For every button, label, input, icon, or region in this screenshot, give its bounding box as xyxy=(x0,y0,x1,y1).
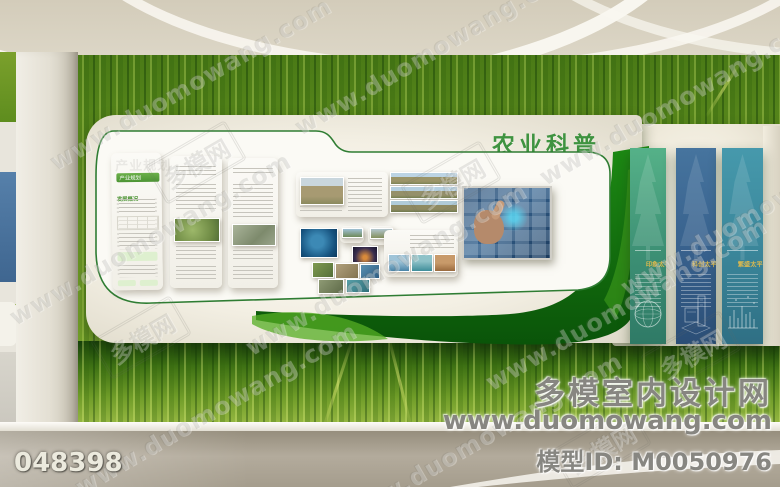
poster-panorama-card xyxy=(296,172,388,217)
photo-caption xyxy=(300,206,342,213)
poster-highlight-box xyxy=(140,280,158,286)
poster-text-block xyxy=(233,266,273,280)
watermark-site-url: www.duomowang.com xyxy=(443,406,772,436)
aerial-photo xyxy=(434,254,456,272)
tree-silhouette-icon xyxy=(630,152,666,260)
site-plan-image xyxy=(232,224,276,246)
ocean-photo xyxy=(300,228,338,258)
poster-text-block xyxy=(117,199,157,214)
poster-highlight-box xyxy=(118,280,136,286)
poster-badge-label: 产业规划 xyxy=(119,174,141,182)
model-id-value: M0050976 xyxy=(631,448,772,476)
image-id: 048398 xyxy=(14,448,123,478)
info-board-1: 印象太平 成就斐然 xyxy=(630,148,666,344)
collage-photo xyxy=(312,262,334,278)
panorama-photo xyxy=(300,177,344,205)
poster-text-block xyxy=(176,246,216,260)
divider xyxy=(635,250,661,251)
poster-text-block xyxy=(233,250,273,260)
model-id-label: 模型ID: xyxy=(536,448,622,476)
wall-column xyxy=(16,52,78,432)
mini-photo xyxy=(342,228,363,238)
poster-text-block xyxy=(176,266,216,280)
render-image: 农业科普 产业规划 产业规划 发展概况 xyxy=(0,0,780,487)
mini-card xyxy=(340,226,364,243)
poster-text-block xyxy=(348,178,382,212)
watermark-model-id: 模型ID: M0050976 xyxy=(536,442,772,477)
mini-caption xyxy=(342,238,361,241)
